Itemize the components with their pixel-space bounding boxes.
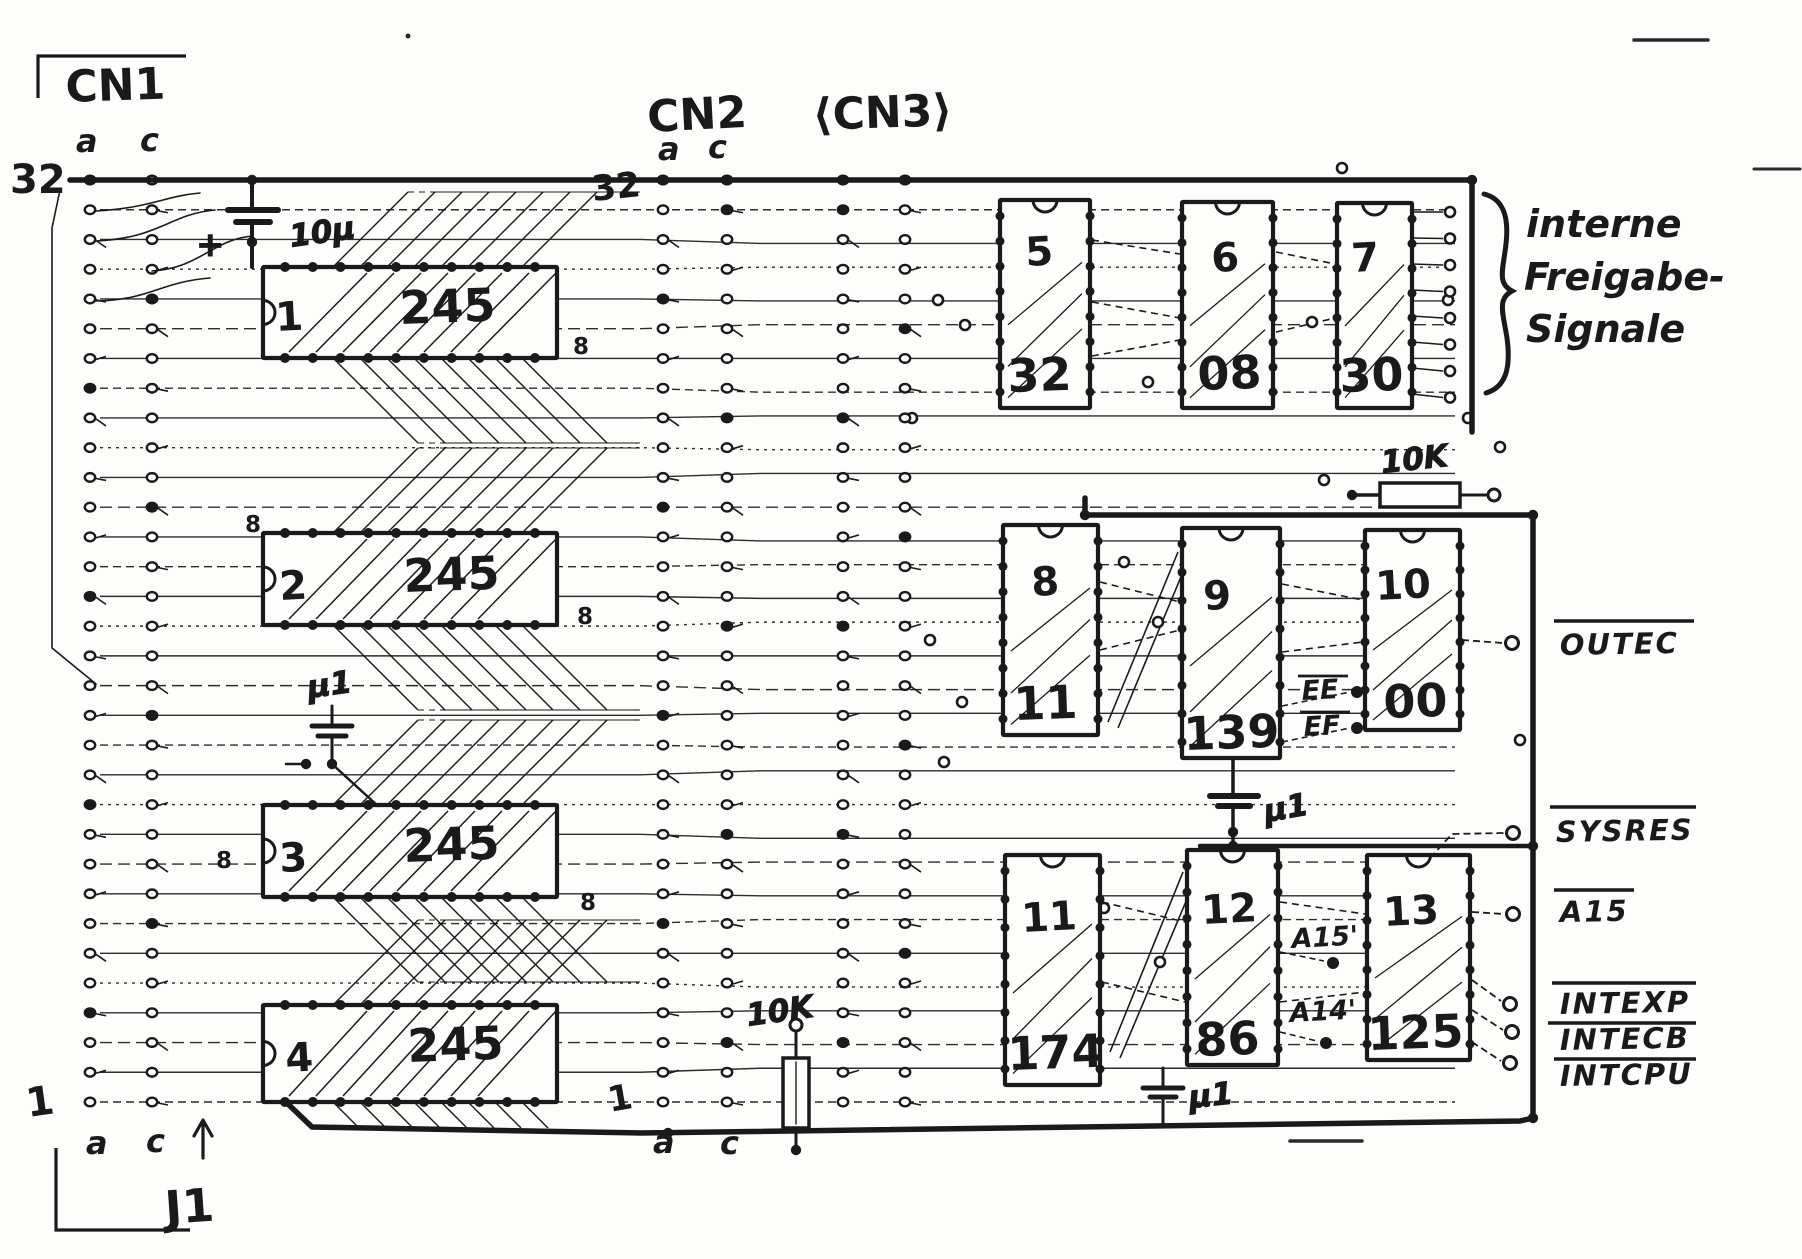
chip-pin bbox=[502, 620, 512, 630]
cn3-pad bbox=[838, 354, 848, 363]
open-pad bbox=[1445, 287, 1455, 297]
chip-pin bbox=[474, 353, 484, 363]
cn2-pad bbox=[658, 562, 668, 571]
net-label: A15' bbox=[1289, 921, 1359, 956]
open-pad bbox=[1515, 735, 1525, 745]
signal-pad bbox=[1504, 1057, 1517, 1070]
cn2-pad bbox=[722, 1038, 732, 1047]
chip-4: 4245 bbox=[263, 1000, 557, 1107]
cn1-pad bbox=[85, 800, 95, 809]
cn1-pad bbox=[85, 473, 95, 482]
net-label: A14' bbox=[1287, 995, 1357, 1030]
cn2-pad bbox=[722, 711, 732, 720]
cn2-pad bbox=[658, 860, 668, 869]
chip-pin bbox=[1456, 686, 1465, 695]
chip-pin bbox=[280, 528, 290, 538]
cn2-pad bbox=[658, 235, 668, 244]
chip-pin bbox=[447, 1000, 457, 1010]
chip-pin bbox=[474, 800, 484, 810]
cn2-pad bbox=[722, 473, 732, 482]
chip-pin bbox=[1178, 288, 1187, 297]
chip-pin bbox=[1274, 966, 1283, 975]
chip-ref-label: 3 bbox=[278, 835, 308, 882]
chip-pin bbox=[447, 800, 457, 810]
open-pad bbox=[1153, 617, 1163, 627]
cn3-pad bbox=[838, 295, 848, 304]
cn3-pad bbox=[900, 1068, 910, 1077]
chip-pin bbox=[1276, 596, 1285, 605]
cn3-pad bbox=[900, 949, 910, 958]
chip-pin bbox=[363, 262, 373, 272]
cn2-bottom-col-c-label: c bbox=[720, 1124, 739, 1162]
cn2-pad bbox=[658, 1008, 668, 1017]
chip-type-label: 245 bbox=[398, 278, 496, 335]
chip-pin bbox=[1269, 338, 1278, 347]
cn1-pad bbox=[85, 265, 95, 274]
chip-pin bbox=[1001, 895, 1010, 904]
chip-pin bbox=[1361, 710, 1370, 719]
cn2-pad bbox=[658, 414, 668, 423]
cn2-bottom-col-a-label: a bbox=[653, 1123, 675, 1161]
cn3-pad bbox=[900, 800, 910, 809]
cn3-pad bbox=[838, 235, 848, 244]
cn3-pad bbox=[900, 711, 910, 720]
chip-pin bbox=[1456, 638, 1465, 647]
cn1-pad bbox=[147, 622, 157, 631]
chip-type-label: 32 bbox=[1006, 347, 1072, 403]
chip-pin bbox=[391, 1000, 401, 1010]
chip-pin bbox=[1178, 214, 1187, 223]
open-pad bbox=[1445, 340, 1455, 350]
chip-pin bbox=[1361, 662, 1370, 671]
open-pad bbox=[1445, 260, 1455, 270]
chip-pin bbox=[336, 1097, 346, 1107]
cn2-pad bbox=[722, 295, 732, 304]
chip-pin bbox=[1269, 363, 1278, 372]
cn1-pad bbox=[147, 354, 157, 363]
cn3-pad bbox=[838, 890, 848, 899]
chip-pin bbox=[1178, 338, 1187, 347]
resistor-body bbox=[1380, 483, 1460, 507]
chip-pin bbox=[336, 892, 346, 902]
chip-pin bbox=[1096, 1008, 1105, 1017]
cn1-pad bbox=[147, 503, 157, 512]
cn2-pad bbox=[658, 711, 668, 720]
cn2-pad bbox=[658, 1038, 668, 1047]
chip-pin bbox=[1274, 1018, 1283, 1027]
chip-pin bbox=[1333, 239, 1342, 248]
cn1-pad bbox=[85, 503, 95, 512]
cn2-pad bbox=[658, 800, 668, 809]
cn2-pad bbox=[722, 890, 732, 899]
open-pad bbox=[933, 295, 943, 305]
chip-pin bbox=[502, 528, 512, 538]
chip-pin bbox=[1269, 313, 1278, 322]
chip-pin bbox=[1178, 540, 1187, 549]
chip-1: 1245 bbox=[263, 262, 557, 363]
signal-label: INTECB bbox=[1560, 1021, 1691, 1057]
open-pad bbox=[1143, 377, 1153, 387]
chip-pin bbox=[474, 1097, 484, 1107]
cn3-pad bbox=[900, 503, 910, 512]
signal-label: A15 bbox=[1558, 894, 1629, 929]
capacitor-value-label: µ1 bbox=[304, 664, 354, 706]
cn1-col-a-label: a bbox=[76, 122, 98, 160]
chip-pin bbox=[336, 800, 346, 810]
cn1-pad bbox=[85, 1068, 95, 1077]
cn2-pad bbox=[658, 979, 668, 988]
cn1-pad bbox=[147, 800, 157, 809]
cn1-pad bbox=[147, 1008, 157, 1017]
chip-pin bbox=[280, 800, 290, 810]
cn1-pad bbox=[147, 681, 157, 690]
cn1-pad bbox=[85, 979, 95, 988]
chip-pin bbox=[1361, 614, 1370, 623]
chip-3: 3245 bbox=[263, 800, 557, 902]
chip-pin bbox=[1408, 239, 1417, 248]
cn3-pad bbox=[900, 1038, 910, 1047]
cn1-pad bbox=[85, 592, 95, 601]
chip-pin bbox=[419, 528, 429, 538]
chip-pin bbox=[336, 262, 346, 272]
chip-pin bbox=[1178, 596, 1187, 605]
chip-pin bbox=[1269, 263, 1278, 272]
chip-pin bbox=[1086, 287, 1095, 296]
chip-ref-label: 9 bbox=[1202, 573, 1232, 620]
signal-pad bbox=[1506, 637, 1519, 650]
chip-pin bbox=[474, 528, 484, 538]
chip-pin bbox=[1408, 313, 1417, 322]
cn1-pad bbox=[85, 890, 95, 899]
cn2-pad bbox=[658, 265, 668, 274]
cn2-pad bbox=[658, 652, 668, 661]
cn2-pad bbox=[658, 473, 668, 482]
chip-pin bbox=[1269, 388, 1278, 397]
cn1-row32-label: 32 bbox=[10, 157, 66, 203]
chip-pin bbox=[1274, 992, 1283, 1001]
chip-pin bbox=[1096, 951, 1105, 960]
chip-pin bbox=[1094, 587, 1103, 596]
cn2-pad bbox=[722, 265, 732, 274]
cn3-pad bbox=[838, 741, 848, 750]
chip-pin bbox=[1466, 1015, 1475, 1024]
chip-ref-label: 11 bbox=[1020, 893, 1078, 942]
chip-pin bbox=[419, 353, 429, 363]
chip-pin bbox=[1086, 388, 1095, 397]
brace-note-line1: interne bbox=[1526, 202, 1682, 246]
chip-ref-label: 10 bbox=[1374, 561, 1432, 610]
chip-pin bbox=[1466, 891, 1475, 900]
chip-13: 13125 bbox=[1363, 855, 1475, 1061]
chip-pin bbox=[1086, 237, 1095, 246]
cn1-pad bbox=[85, 324, 95, 333]
cn3-pad bbox=[838, 265, 848, 274]
chip-9: 9139 bbox=[1178, 528, 1285, 761]
cn3-pad bbox=[838, 1068, 848, 1077]
chip-pin bbox=[1001, 951, 1010, 960]
cn3-pad bbox=[900, 533, 910, 542]
chip-pin bbox=[447, 892, 457, 902]
chip-pin bbox=[996, 312, 1005, 321]
chip-pin bbox=[447, 620, 457, 630]
chip-pin bbox=[447, 353, 457, 363]
cn3-pad bbox=[838, 562, 848, 571]
jumper-j1-label: J1 bbox=[160, 1178, 216, 1236]
chip-pin bbox=[1333, 289, 1342, 298]
cn3-pad bbox=[900, 562, 910, 571]
cn1-pad bbox=[147, 235, 157, 244]
cn1-pad bbox=[147, 919, 157, 928]
cn2-pad bbox=[658, 295, 668, 304]
net-junction-dot bbox=[1351, 722, 1363, 734]
chip-pin bbox=[530, 353, 540, 363]
open-pad bbox=[939, 757, 949, 767]
chip-pin bbox=[1456, 542, 1465, 551]
cn1-col-c-label: c bbox=[140, 121, 159, 159]
chip-ref-label: 8 bbox=[1030, 559, 1060, 606]
chip-pin bbox=[1086, 362, 1095, 371]
chip-ref-label: 5 bbox=[1024, 229, 1054, 276]
chip-pin bbox=[1466, 965, 1475, 974]
cn3-pad bbox=[838, 324, 848, 333]
cn1-bottom-col-a-label: a bbox=[86, 1124, 108, 1162]
chip-type-label: 125 bbox=[1366, 1004, 1464, 1061]
cn3-pad bbox=[838, 681, 848, 690]
chip-pin bbox=[502, 353, 512, 363]
cn3-pad bbox=[900, 324, 910, 333]
cn3-pad bbox=[838, 384, 848, 393]
cn2-pad bbox=[658, 771, 668, 780]
pin-number-mark: 8 bbox=[216, 848, 232, 874]
cn1-pad bbox=[147, 443, 157, 452]
chip-ref-label: 7 bbox=[1350, 235, 1380, 282]
cn2-pad bbox=[658, 1068, 668, 1077]
cn3-pad bbox=[838, 503, 848, 512]
cn3-pad bbox=[838, 979, 848, 988]
chip-ref-label: 13 bbox=[1382, 887, 1440, 936]
cn3-pad bbox=[838, 1008, 848, 1017]
chip-type-label: 00 bbox=[1382, 673, 1448, 729]
chip-pin bbox=[1001, 1008, 1010, 1017]
cn1-pad bbox=[85, 1098, 95, 1107]
chip-pin bbox=[996, 362, 1005, 371]
capacitor-value-label: µ1 bbox=[1186, 1076, 1235, 1117]
cn3-pad bbox=[838, 533, 848, 542]
signal-label: OUTEC bbox=[1560, 626, 1680, 662]
cn2-pad bbox=[722, 384, 732, 393]
chip-pin bbox=[530, 1097, 540, 1107]
chip-pin bbox=[1363, 965, 1372, 974]
brace-note-line2: Freigabe- bbox=[1524, 255, 1725, 299]
cn2-pad bbox=[658, 592, 668, 601]
cn1-pad bbox=[85, 354, 95, 363]
chip-pin bbox=[996, 212, 1005, 221]
chip-pin bbox=[996, 388, 1005, 397]
cn1-pad bbox=[85, 235, 95, 244]
chip-pin bbox=[1408, 264, 1417, 273]
cn3-pad bbox=[900, 443, 910, 452]
chip-pin bbox=[1094, 562, 1103, 571]
chip-type-label: 08 bbox=[1196, 345, 1262, 401]
pin-number-mark: 8 bbox=[577, 604, 593, 630]
cn2-pad bbox=[722, 681, 732, 690]
cn1-pad bbox=[85, 652, 95, 661]
open-pad bbox=[1445, 207, 1455, 217]
cn1-pad bbox=[147, 890, 157, 899]
cn3-pad bbox=[900, 860, 910, 869]
cn3-pad bbox=[900, 354, 910, 363]
chip-pin bbox=[308, 528, 318, 538]
cn3-pad bbox=[838, 1038, 848, 1047]
chip-pin bbox=[1178, 624, 1187, 633]
cn2-pad bbox=[722, 652, 732, 661]
chip-pin bbox=[502, 1000, 512, 1010]
chip-pin bbox=[280, 892, 290, 902]
chip-type-label: 30 bbox=[1338, 347, 1404, 403]
chip-pin bbox=[391, 800, 401, 810]
chip-pin bbox=[1361, 638, 1370, 647]
chip-pin bbox=[474, 892, 484, 902]
cn3-pad bbox=[838, 771, 848, 780]
cn1-pad bbox=[147, 771, 157, 780]
chip-pin bbox=[1274, 940, 1283, 949]
chip-pin bbox=[999, 587, 1008, 596]
cn1-pad bbox=[147, 592, 157, 601]
net-junction-dot bbox=[1351, 686, 1363, 698]
chip-pin bbox=[530, 800, 540, 810]
cn3-pad bbox=[838, 622, 848, 631]
cn1-pad bbox=[147, 295, 157, 304]
chip-pin bbox=[1363, 990, 1372, 999]
cn1-title: CN1 bbox=[65, 59, 166, 113]
chip-pin bbox=[336, 1000, 346, 1010]
chip-pin bbox=[1096, 923, 1105, 932]
chip-pin bbox=[308, 620, 318, 630]
chip-pin bbox=[1456, 566, 1465, 575]
cn2-pad bbox=[658, 205, 668, 214]
chip-12: 1286 bbox=[1183, 850, 1283, 1067]
chip-pin bbox=[1408, 363, 1417, 372]
chip-pin bbox=[336, 620, 346, 630]
chip-pin bbox=[363, 1000, 373, 1010]
cn2-pad bbox=[722, 562, 732, 571]
chip-pin bbox=[1094, 613, 1103, 622]
chip-pin bbox=[447, 262, 457, 272]
chip-pin bbox=[996, 337, 1005, 346]
cn2-pad bbox=[722, 503, 732, 512]
chip-pin bbox=[1361, 590, 1370, 599]
chip-pin bbox=[419, 892, 429, 902]
chip-pin bbox=[1096, 980, 1105, 989]
chip-pin bbox=[474, 262, 484, 272]
chip-pin bbox=[999, 537, 1008, 546]
chip-pin bbox=[1363, 941, 1372, 950]
chip-pin bbox=[1086, 337, 1095, 346]
cn2-pad bbox=[658, 384, 668, 393]
cn3-pad bbox=[900, 830, 910, 839]
cn3-pad bbox=[838, 414, 848, 423]
chip-pin bbox=[419, 620, 429, 630]
cn2-pad bbox=[722, 205, 732, 214]
cn1-pad bbox=[147, 324, 157, 333]
cn1-pad bbox=[147, 265, 157, 274]
cn2-pad bbox=[722, 979, 732, 988]
signal-label: SYSRES bbox=[1556, 813, 1694, 849]
cn2-pad bbox=[658, 890, 668, 899]
chip-pin bbox=[308, 353, 318, 363]
chip-pin bbox=[1183, 1018, 1192, 1027]
chip-pin bbox=[1363, 891, 1372, 900]
cn1-pad bbox=[85, 295, 95, 304]
chip-pin bbox=[391, 1097, 401, 1107]
cn1-pad bbox=[147, 533, 157, 542]
cn2-pad bbox=[658, 503, 668, 512]
chip-pin bbox=[1183, 940, 1192, 949]
chip-pin bbox=[1178, 568, 1187, 577]
chip-11: 11174 bbox=[1001, 855, 1105, 1085]
cn3-pad bbox=[838, 443, 848, 452]
chip-pin bbox=[1274, 862, 1283, 871]
cn3-pad bbox=[900, 414, 910, 423]
cn2-pad bbox=[722, 354, 732, 363]
resistor-value-label: 10K bbox=[1379, 438, 1452, 481]
chip-pin bbox=[363, 353, 373, 363]
cn3-pad bbox=[838, 473, 848, 482]
chip-pin bbox=[1274, 1045, 1283, 1054]
chip-pin bbox=[419, 800, 429, 810]
cn2-pad bbox=[658, 324, 668, 333]
chip-pin bbox=[502, 262, 512, 272]
open-pad bbox=[1445, 393, 1455, 403]
cn2-pad bbox=[722, 771, 732, 780]
open-pad bbox=[1445, 234, 1455, 244]
cn2-pad bbox=[722, 622, 732, 631]
cn1-pad bbox=[85, 414, 95, 423]
scanned-pcb-diagram: 1245224532454245532608730811913910001117… bbox=[0, 0, 1802, 1259]
capacitor-polarity-label: + bbox=[196, 225, 225, 265]
cn2-pad bbox=[722, 592, 732, 601]
chip-pin bbox=[447, 528, 457, 538]
chip-pin bbox=[1456, 662, 1465, 671]
chip-pin bbox=[1183, 992, 1192, 1001]
chip-pin bbox=[502, 800, 512, 810]
cn3-pad bbox=[900, 681, 910, 690]
chip-pin bbox=[1363, 867, 1372, 876]
chip-pin bbox=[530, 1000, 540, 1010]
chip-pin bbox=[1094, 638, 1103, 647]
chip-pin bbox=[999, 664, 1008, 673]
chip-pin bbox=[1094, 664, 1103, 673]
signal-label: INTEXP bbox=[1560, 985, 1691, 1021]
chip-pin bbox=[1001, 923, 1010, 932]
chip-pin bbox=[1094, 715, 1103, 724]
chip-pin bbox=[391, 892, 401, 902]
chip-pin bbox=[1466, 916, 1475, 925]
cn1-pad bbox=[85, 443, 95, 452]
cn1-pad bbox=[85, 622, 95, 631]
chip-pin bbox=[474, 1000, 484, 1010]
cn2-pad bbox=[722, 235, 732, 244]
chip-pin bbox=[308, 1000, 318, 1010]
cn2-pad bbox=[722, 414, 732, 423]
chip-type-label: 174 bbox=[1006, 1024, 1104, 1081]
chip-pin bbox=[1178, 653, 1187, 662]
cn2-pad bbox=[722, 741, 732, 750]
chip-pin bbox=[1086, 212, 1095, 221]
chip-pin bbox=[1363, 916, 1372, 925]
chip-pin bbox=[363, 1097, 373, 1107]
cn1-pad bbox=[85, 711, 95, 720]
